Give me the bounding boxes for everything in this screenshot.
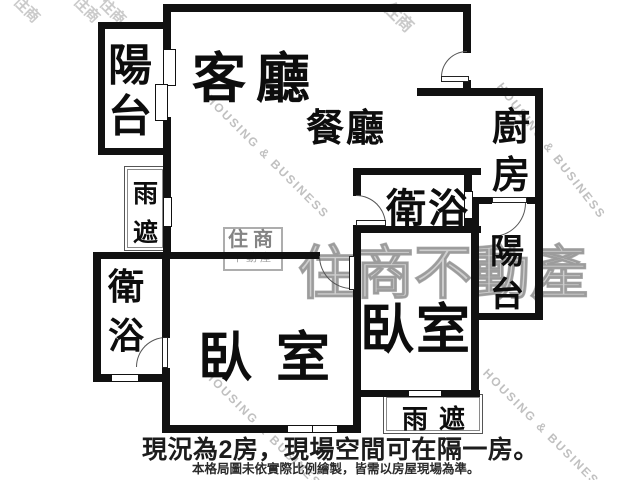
wall-segment	[98, 22, 170, 29]
room-label-bath-main: 衛浴	[386, 176, 470, 234]
wall-segment	[98, 22, 105, 155]
door-arc	[441, 51, 467, 77]
wall-segment	[162, 368, 170, 382]
wall-segment	[463, 4, 471, 53]
door-leaf	[162, 337, 168, 368]
wall-segment	[163, 4, 171, 51]
caption-disclaimer: 本格局圖未依實際比例繪製，皆需以房屋現場為準。	[192, 458, 480, 477]
window-symbol	[408, 390, 442, 397]
canopy-left-label: 雨遮	[132, 175, 159, 253]
room-label-bedroom-left: 臥室	[198, 313, 354, 392]
wall-segment	[353, 390, 408, 397]
wall-segment	[535, 88, 543, 320]
wall-segment	[93, 374, 111, 382]
wall-segment	[163, 4, 471, 12]
room-label-bath-second: 衛浴	[106, 262, 146, 360]
brand-logo-top: 住商	[225, 229, 281, 251]
door-leaf	[356, 220, 386, 226]
sliding-window-panel	[155, 84, 168, 121]
door-arc	[319, 256, 352, 289]
watermark-fragment: 住商	[9, 0, 45, 27]
door-leaf	[349, 256, 355, 290]
brand-logo-watermark: 住商 不動產	[223, 227, 283, 271]
wall-segment	[163, 117, 171, 198]
wall-segment	[93, 252, 167, 259]
room-label-balcony-front: 陽台	[106, 40, 154, 142]
room-label-balcony-rear: 陽台	[489, 231, 525, 317]
wall-segment	[442, 390, 480, 397]
sliding-window-panel	[163, 49, 176, 86]
room-label-dining: 餐廳	[306, 97, 386, 152]
room-label-kitchen: 廚房	[491, 104, 531, 200]
wall-segment	[93, 252, 101, 382]
wall-segment	[417, 88, 543, 96]
wall-segment	[353, 168, 481, 175]
floor-plan: 住商 住商 住商 住商 HOUSING & BUSINESS HOUSING &…	[0, 0, 640, 480]
room-label-bedroom-right: 臥室	[360, 285, 472, 364]
wall-segment	[162, 252, 170, 338]
door-leaf	[441, 76, 469, 82]
room-label-living: 客廳	[192, 34, 320, 113]
window-symbol	[111, 374, 139, 382]
window-symbol	[163, 197, 172, 227]
wall-segment	[98, 148, 170, 155]
wall-segment	[162, 252, 320, 259]
